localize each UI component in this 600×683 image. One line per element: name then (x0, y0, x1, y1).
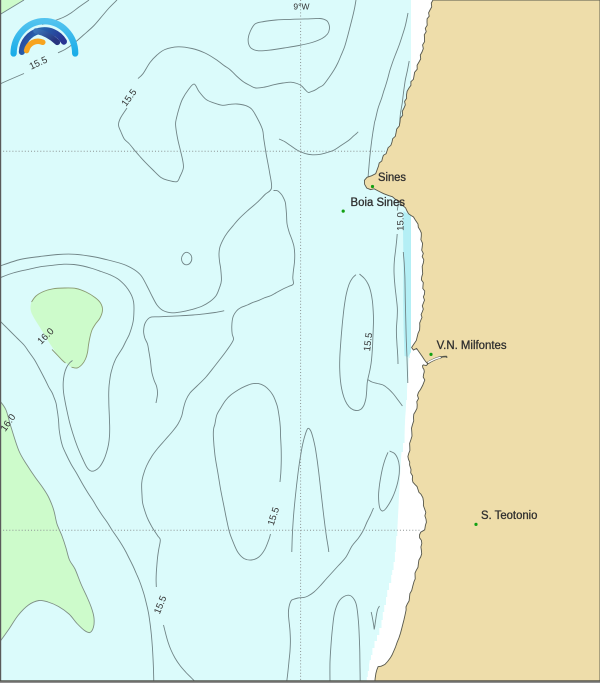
svg-text:S. Teotonio: S. Teotonio (481, 510, 538, 522)
svg-text:15.0: 15.0 (395, 212, 406, 231)
svg-text:9°W: 9°W (293, 2, 309, 12)
svg-text:Sines: Sines (378, 172, 406, 184)
svg-text:15.5: 15.5 (362, 332, 375, 352)
svg-text:Boia Sines: Boia Sines (351, 197, 406, 209)
svg-text:V.N. Milfontes: V.N. Milfontes (437, 340, 507, 352)
